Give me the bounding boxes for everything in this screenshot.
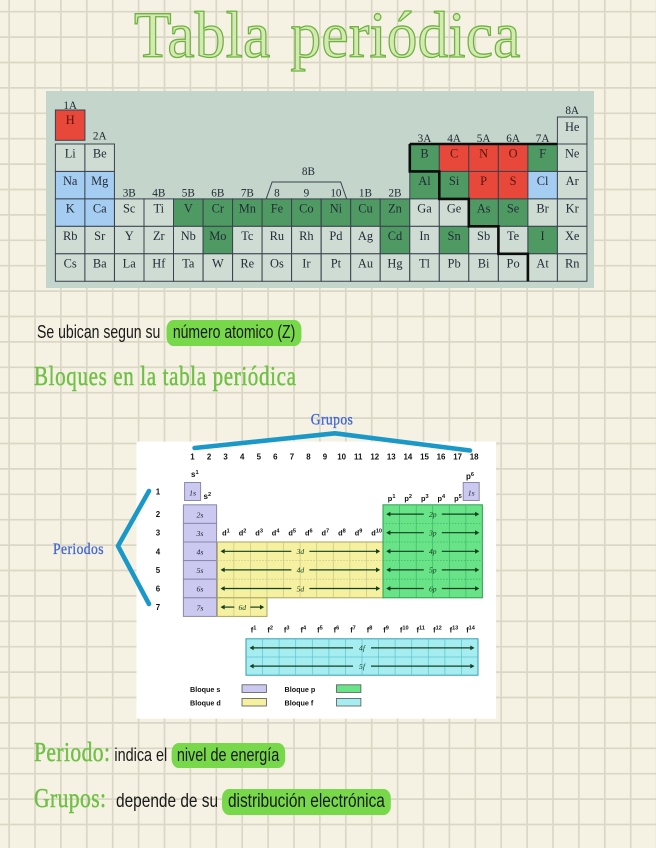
svg-text:Ni: Ni [330, 202, 343, 216]
svg-text:Cl: Cl [537, 174, 549, 188]
svg-text:4: 4 [240, 453, 245, 462]
svg-text:Zr: Zr [153, 229, 166, 243]
svg-text:Mo: Mo [209, 229, 226, 243]
svg-text:3B: 3B [123, 188, 136, 200]
svg-text:N: N [479, 147, 488, 161]
svg-text:2s: 2s [197, 510, 204, 519]
svg-text:Fe: Fe [271, 202, 284, 216]
svg-text:5s: 5s [197, 566, 204, 575]
svg-text:Re: Re [240, 256, 254, 270]
svg-text:6s: 6s [197, 585, 204, 594]
svg-text:Se: Se [507, 202, 520, 216]
svg-text:Mg: Mg [91, 174, 108, 188]
svg-text:Li: Li [65, 147, 77, 161]
svg-text:Ta: Ta [182, 256, 195, 270]
svg-text:P: P [480, 174, 487, 188]
svg-text:Bloque d: Bloque d [190, 699, 221, 708]
svg-text:Ti: Ti [153, 202, 164, 216]
svg-text:Rb: Rb [63, 229, 77, 243]
svg-text:Sc: Sc [123, 202, 136, 216]
svg-text:12: 12 [370, 453, 379, 462]
svg-text:Be: Be [93, 147, 107, 161]
svg-text:7: 7 [290, 453, 295, 462]
svg-text:4: 4 [156, 547, 161, 556]
svg-text:Cd: Cd [388, 229, 403, 243]
svg-text:Ir: Ir [302, 256, 311, 270]
svg-text:3: 3 [223, 453, 228, 462]
svg-text:Ga: Ga [417, 202, 432, 216]
svg-text:4s: 4s [197, 548, 204, 557]
svg-text:4B: 4B [152, 188, 165, 200]
svg-text:Rh: Rh [299, 229, 314, 243]
svg-text:7: 7 [156, 603, 161, 612]
svg-text:I: I [540, 229, 544, 243]
svg-text:1s: 1s [468, 489, 475, 498]
svg-text:Tl: Tl [419, 256, 431, 270]
svg-text:B: B [420, 147, 428, 161]
svg-text:8: 8 [306, 453, 311, 462]
svg-text:Bloque s: Bloque s [190, 685, 220, 694]
svg-text:Au: Au [358, 256, 373, 270]
svg-text:Bi: Bi [478, 256, 490, 270]
svg-text:At: At [536, 256, 549, 270]
svg-text:Co: Co [299, 202, 313, 216]
svg-text:Zn: Zn [388, 202, 402, 216]
svg-text:4p: 4p [429, 547, 437, 556]
svg-text:Hg: Hg [387, 256, 402, 270]
svg-text:1: 1 [190, 453, 195, 462]
svg-text:8A: 8A [565, 105, 579, 117]
svg-text:Rn: Rn [565, 256, 579, 270]
svg-text:Cr: Cr [211, 202, 224, 216]
svg-text:5B: 5B [182, 188, 195, 200]
svg-text:3p: 3p [428, 529, 437, 538]
svg-text:5d: 5d [297, 584, 305, 593]
svg-text:11: 11 [354, 453, 363, 462]
svg-text:Ru: Ru [270, 229, 284, 243]
svg-text:Ge: Ge [447, 202, 462, 216]
svg-text:H: H [66, 113, 75, 127]
svg-text:6: 6 [156, 585, 161, 594]
svg-text:5: 5 [156, 566, 161, 575]
svg-text:Ne: Ne [565, 147, 580, 161]
svg-text:1s: 1s [189, 489, 196, 498]
svg-text:1B: 1B [359, 188, 372, 200]
svg-text:Bloque f: Bloque f [285, 699, 314, 708]
svg-text:17: 17 [453, 453, 462, 462]
svg-text:3: 3 [156, 529, 161, 538]
svg-text:6B: 6B [211, 188, 224, 200]
svg-text:Xe: Xe [565, 229, 580, 243]
svg-text:Pb: Pb [447, 256, 460, 270]
svg-text:Na: Na [63, 174, 78, 188]
svg-text:5f: 5f [359, 662, 366, 671]
svg-text:10: 10 [337, 453, 346, 462]
svg-text:Si: Si [449, 174, 460, 188]
svg-text:Y: Y [125, 229, 134, 243]
svg-text:Tc: Tc [241, 229, 254, 243]
svg-text:Os: Os [270, 256, 284, 270]
svg-text:K: K [66, 202, 75, 216]
svg-text:In: In [419, 229, 429, 243]
svg-text:6p: 6p [429, 584, 437, 593]
svg-text:Sn: Sn [447, 229, 460, 243]
svg-text:Nb: Nb [181, 229, 196, 243]
svg-text:Bloque p: Bloque p [285, 685, 316, 694]
svg-text:14: 14 [404, 453, 413, 462]
svg-text:8B: 8B [302, 166, 315, 178]
svg-text:Grupos: Grupos [311, 412, 354, 429]
svg-text:1: 1 [156, 488, 161, 497]
svg-text:Mn: Mn [239, 202, 256, 216]
svg-text:3d: 3d [296, 547, 305, 556]
svg-text:Pd: Pd [329, 229, 343, 243]
svg-text:3s: 3s [196, 529, 204, 538]
svg-text:F: F [539, 147, 546, 161]
svg-text:As: As [477, 202, 491, 216]
svg-text:5: 5 [257, 453, 262, 462]
svg-text:Hf: Hf [152, 256, 166, 270]
svg-text:Ar: Ar [566, 174, 580, 188]
svg-text:Pt: Pt [331, 256, 342, 270]
svg-text:C: C [450, 147, 458, 161]
svg-text:2B: 2B [388, 188, 401, 200]
svg-text:13: 13 [387, 453, 396, 462]
svg-text:Po: Po [506, 256, 519, 270]
svg-text:O: O [509, 147, 518, 161]
svg-text:W: W [212, 256, 224, 270]
svg-text:La: La [123, 256, 137, 270]
svg-text:7B: 7B [241, 188, 254, 200]
svg-text:2A: 2A [93, 131, 107, 143]
svg-text:6: 6 [273, 453, 278, 462]
svg-text:Sr: Sr [94, 229, 106, 243]
svg-text:Cs: Cs [64, 256, 77, 270]
svg-text:10: 10 [330, 188, 342, 200]
svg-text:16: 16 [437, 453, 446, 462]
svg-text:Br: Br [536, 202, 549, 216]
svg-text:7s: 7s [197, 603, 204, 612]
svg-text:Ba: Ba [93, 256, 107, 270]
svg-text:2: 2 [156, 510, 161, 519]
svg-text:18: 18 [470, 453, 479, 462]
svg-text:Ca: Ca [93, 202, 107, 216]
svg-text:Sb: Sb [477, 229, 490, 243]
svg-text:V: V [184, 202, 193, 216]
svg-text:Cu: Cu [358, 202, 372, 216]
svg-text:He: He [565, 120, 580, 134]
svg-text:4d: 4d [297, 566, 305, 575]
svg-text:9: 9 [323, 453, 328, 462]
svg-text:2: 2 [207, 453, 212, 462]
svg-text:Te: Te [507, 229, 520, 243]
svg-text:Periodos: Periodos [53, 541, 104, 558]
svg-text:6d: 6d [239, 603, 247, 612]
svg-text:5p: 5p [429, 566, 437, 575]
svg-text:15: 15 [420, 453, 429, 462]
svg-text:8: 8 [274, 188, 280, 200]
svg-text:2p: 2p [429, 510, 437, 519]
svg-text:Ag: Ag [358, 229, 373, 243]
svg-text:4f: 4f [359, 644, 366, 653]
svg-text:Al: Al [418, 174, 431, 188]
svg-text:Kr: Kr [566, 202, 580, 216]
svg-text:S: S [510, 174, 517, 188]
svg-text:9: 9 [303, 188, 309, 200]
